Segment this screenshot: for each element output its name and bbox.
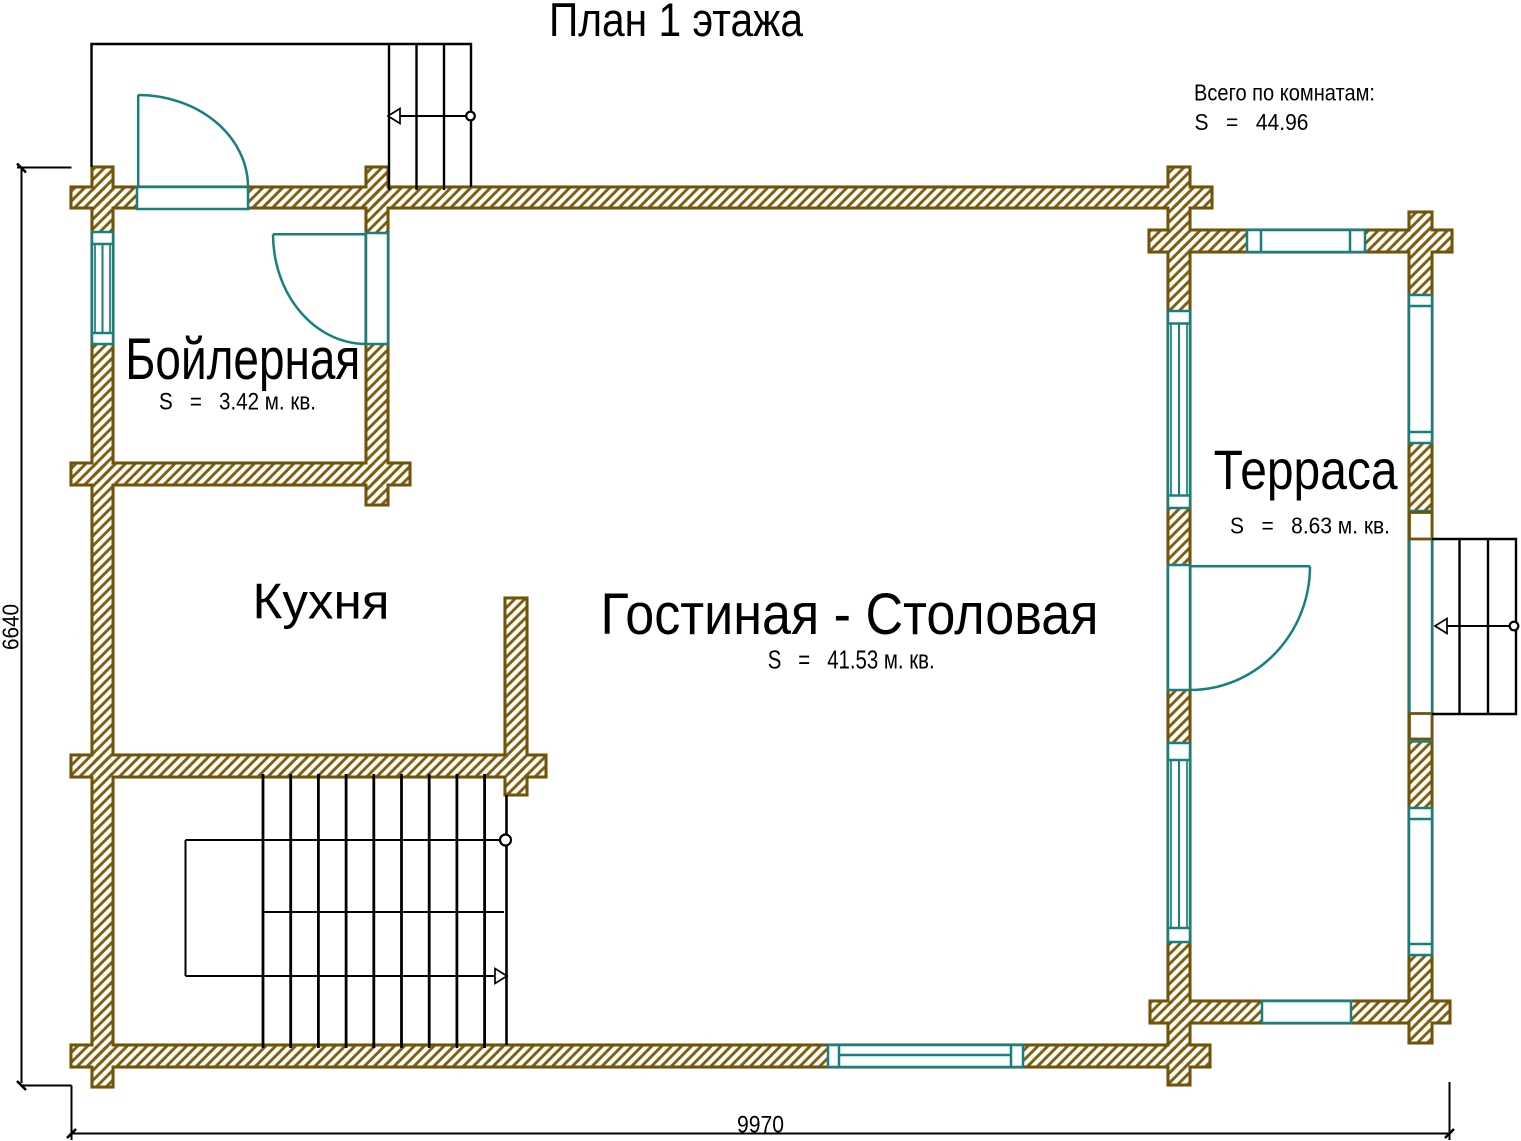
svg-text:6640: 6640 [0, 604, 24, 650]
svg-text:S = 41.53 м. кв.: S = 41.53 м. кв. [768, 647, 935, 675]
svg-text:S = 3.42 м. кв.: S = 3.42 м. кв. [159, 389, 316, 416]
svg-text:Бойлерная: Бойлерная [125, 327, 360, 392]
svg-text:Кухня: Кухня [253, 573, 390, 629]
svg-text:Гостиная - Столовая: Гостиная - Столовая [601, 582, 1099, 647]
svg-text:План 1 этажа: План 1 этажа [549, 0, 804, 46]
svg-text:Всего по комнатам:: Всего по комнатам: [1194, 80, 1375, 106]
svg-text:S = 8.63 м. кв.: S = 8.63 м. кв. [1230, 513, 1390, 539]
svg-text:Терраса: Терраса [1214, 438, 1399, 501]
svg-text:9970: 9970 [737, 1112, 784, 1139]
svg-text:S = 44.96: S = 44.96 [1195, 109, 1309, 135]
